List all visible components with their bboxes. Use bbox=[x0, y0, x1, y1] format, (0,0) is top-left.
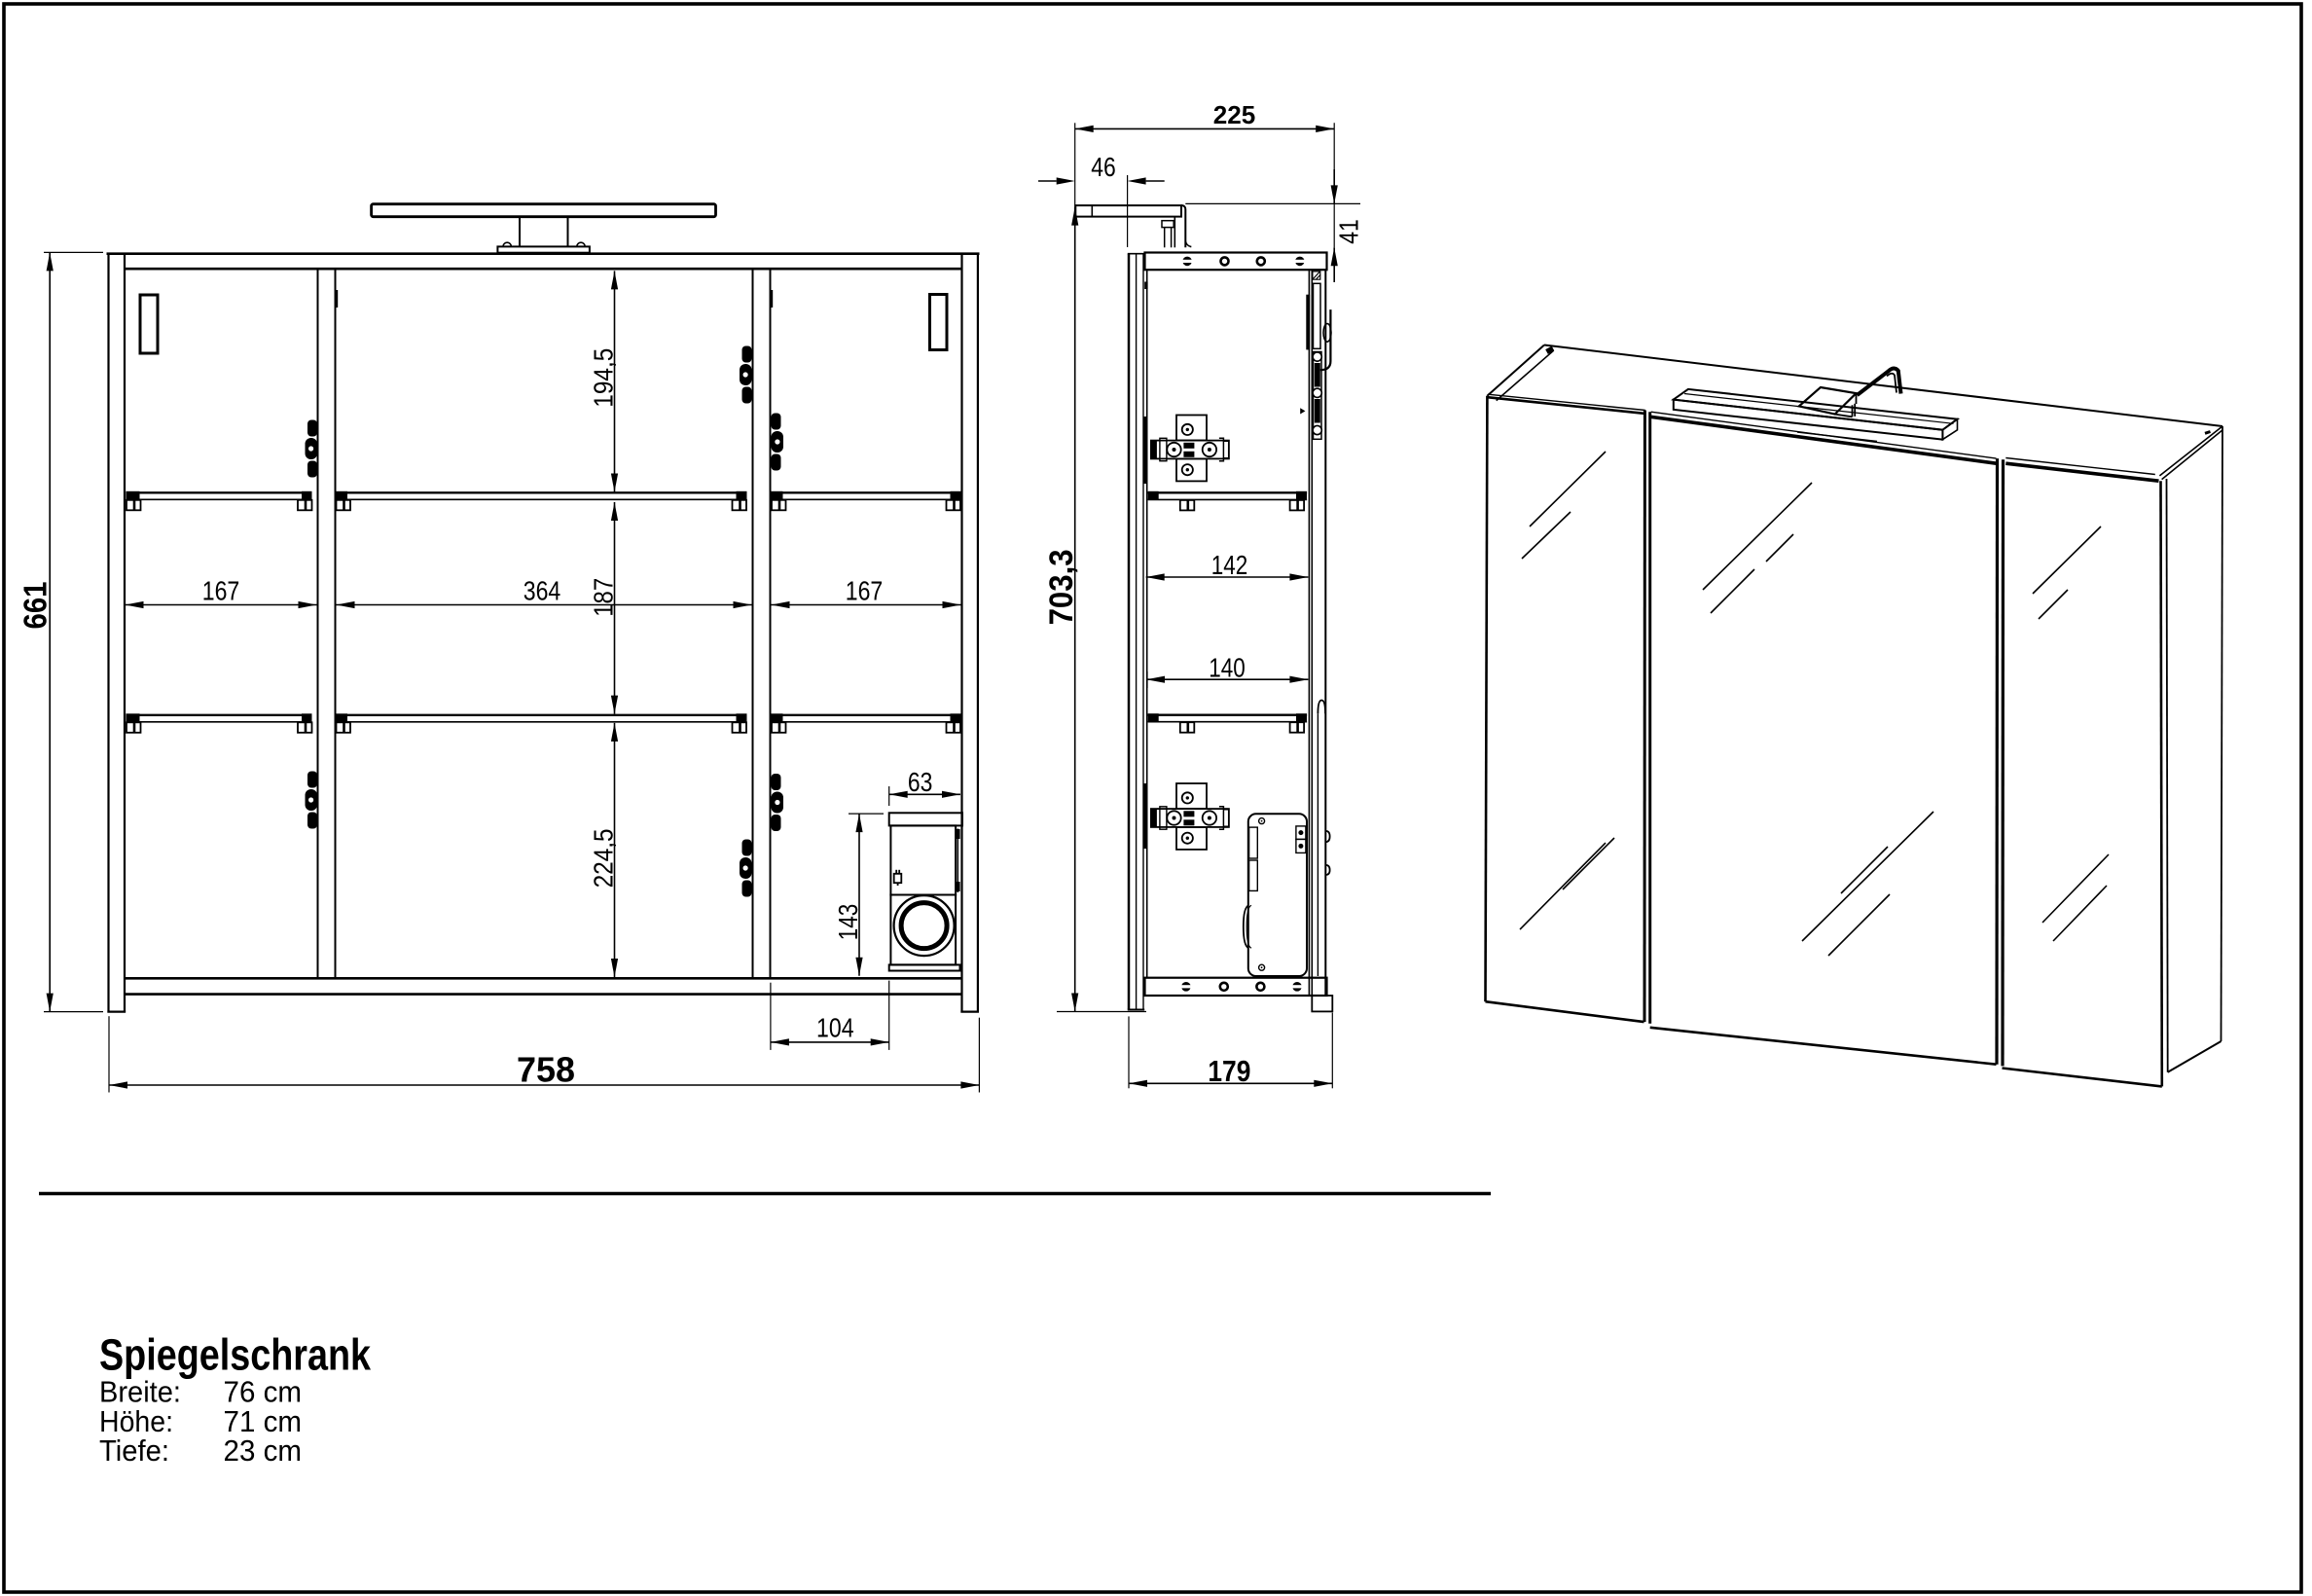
svg-text:179: 179 bbox=[1208, 1054, 1250, 1088]
svg-text:104: 104 bbox=[816, 1013, 854, 1043]
svg-text:143: 143 bbox=[833, 904, 863, 941]
svg-text:167: 167 bbox=[202, 575, 240, 605]
svg-text:23 cm: 23 cm bbox=[224, 1433, 303, 1468]
svg-text:364: 364 bbox=[524, 575, 561, 605]
svg-text:661: 661 bbox=[18, 582, 54, 630]
svg-text:167: 167 bbox=[846, 575, 884, 605]
svg-text:41: 41 bbox=[1334, 219, 1364, 244]
svg-text:194,5: 194,5 bbox=[589, 348, 619, 408]
svg-text:703,3: 703,3 bbox=[1043, 549, 1080, 625]
svg-text:142: 142 bbox=[1211, 550, 1248, 580]
svg-text:225: 225 bbox=[1213, 100, 1256, 129]
svg-text:46: 46 bbox=[1091, 152, 1116, 182]
svg-text:187: 187 bbox=[589, 578, 619, 617]
svg-text:Tiefe:: Tiefe: bbox=[99, 1433, 169, 1468]
svg-text:Spiegelschrank: Spiegelschrank bbox=[99, 1330, 372, 1380]
svg-text:224,5: 224,5 bbox=[589, 828, 619, 888]
svg-text:63: 63 bbox=[908, 767, 933, 797]
svg-text:758: 758 bbox=[517, 1050, 575, 1090]
svg-text:140: 140 bbox=[1209, 653, 1246, 683]
